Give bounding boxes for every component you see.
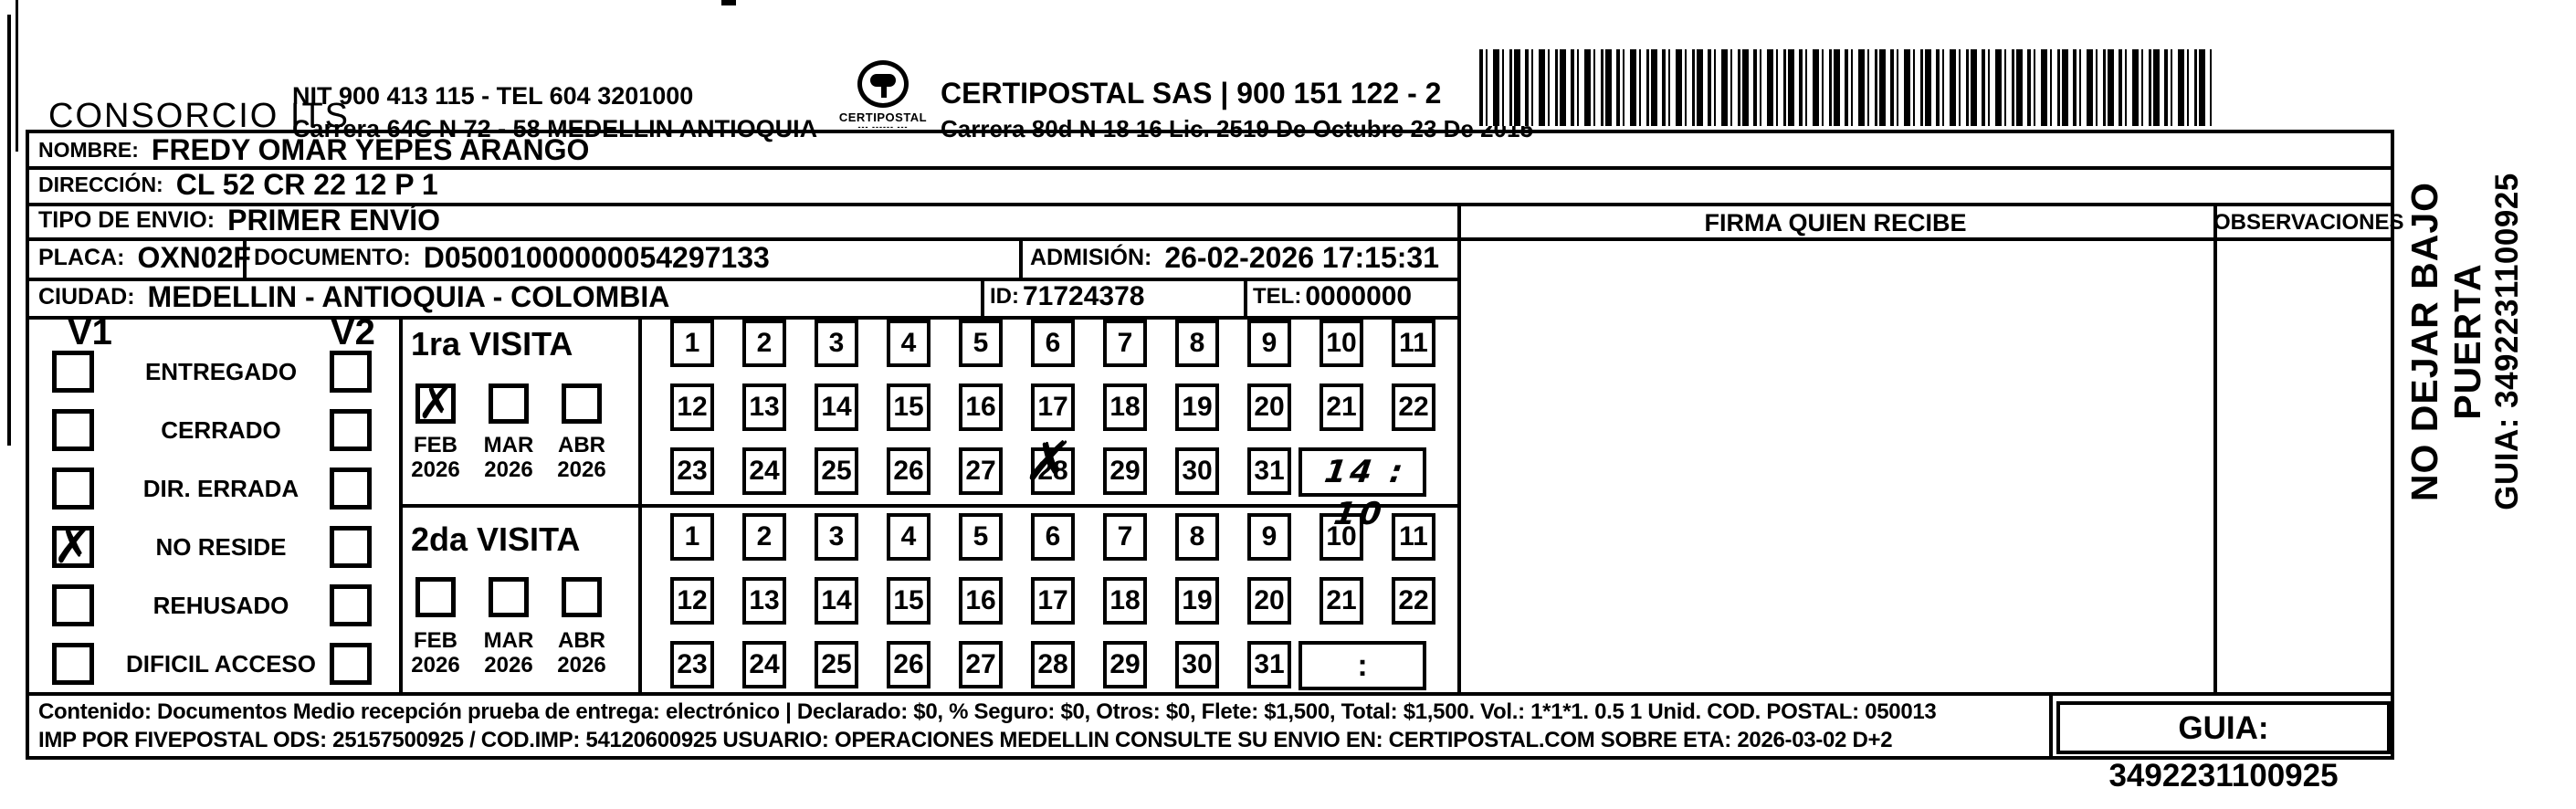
admision-value: 26-02-2026 17:15:31 <box>1164 241 1439 275</box>
v1-checkbox-no-reside: ✗ <box>52 526 94 568</box>
month-label-visit2-mar-2026: MAR2026 <box>468 628 550 678</box>
id-value: 71724378 <box>1023 281 1144 312</box>
tipo-envio-row: TIPO DE ENVIO: PRIMER ENVÍO <box>38 203 440 237</box>
day-box-visit2-27: 27 <box>959 641 1003 688</box>
observaciones-header: OBSERVACIONES <box>2213 205 2398 239</box>
scan-artifact-line <box>16 0 18 152</box>
admision-cell: ADMISIÓN: 26-02-2026 17:15:31 <box>1030 237 1439 278</box>
day-box-visit2-14: 14 <box>815 577 858 625</box>
placa-label: PLACA: <box>38 245 124 271</box>
day-box-visit1-24: 24 <box>742 447 786 495</box>
visit1-title: 1ra VISITA <box>411 325 573 363</box>
month-label-visit1-abr-2026: ABR2026 <box>541 433 623 482</box>
day-box-visit1-12: 12 <box>670 383 714 431</box>
day-box-visit1-7: 7 <box>1103 320 1147 367</box>
v1-checkbox-entregado <box>52 351 94 393</box>
time-value-visit2: : <box>1357 645 1367 687</box>
day-box-visit2-3: 3 <box>815 513 858 561</box>
tel-label: TEL: <box>1253 284 1301 310</box>
day-box-visit1-10: 10 <box>1320 320 1363 367</box>
tipo-envio-value: PRIMER ENVÍO <box>227 204 440 237</box>
day-box-visit2-16: 16 <box>959 577 1003 625</box>
nombre-value: FREDY OMAR YEPES ARANGO <box>152 133 589 167</box>
v2-checkbox-no-reside <box>330 526 372 568</box>
day-box-visit2-13: 13 <box>742 577 786 625</box>
status-option-label-rehusado: REHUSADO <box>116 592 326 620</box>
tel-value: 0000000 <box>1305 281 1412 312</box>
firma-signature-area <box>1457 237 2213 692</box>
side-guia-number: GUIA: 3492231100925 <box>2489 131 2526 552</box>
day-box-visit2-2: 2 <box>742 513 786 561</box>
time-box-visit2: : <box>1299 641 1426 690</box>
day-box-visit1-23: 23 <box>670 447 714 495</box>
month-label-visit2-feb-2026: FEB2026 <box>394 628 477 678</box>
day-box-visit1-27: 27 <box>959 447 1003 495</box>
day-box-visit1-3: 3 <box>815 320 858 367</box>
day-box-visit1-19: 19 <box>1175 383 1219 431</box>
day-box-visit1-28: 28✗ <box>1031 447 1075 495</box>
day-box-visit2-7: 7 <box>1103 513 1147 561</box>
side-rotated-text: NO DEJAR BAJO PUERTA GUIA: 3492231100925 <box>2403 131 2495 552</box>
day-box-visit2-9: 9 <box>1247 513 1291 561</box>
day-box-visit2-28: 28 <box>1031 641 1075 688</box>
handwritten-x-day-28: ✗ <box>1023 442 1078 482</box>
time-box-visit1: 14 : 10 <box>1299 447 1426 497</box>
v1-checkbox-dificil-acceso <box>52 643 94 685</box>
month-checkbox-visit1-mar-2026 <box>489 383 529 424</box>
tel-cell: TEL: 0000000 <box>1253 278 1412 316</box>
delivery-form-table: NOMBRE: FREDY OMAR YEPES ARANGO DIRECCIÓ… <box>26 130 2394 760</box>
day-box-visit1-20: 20 <box>1247 383 1291 431</box>
id-label: ID: <box>990 284 1019 310</box>
day-box-visit1-16: 16 <box>959 383 1003 431</box>
observaciones-area <box>2213 237 2398 692</box>
ciudad-label: CIUDAD: <box>38 284 135 310</box>
direccion-row: DIRECCIÓN: CL 52 CR 22 12 P 1 <box>38 166 438 203</box>
month-checkbox-visit1-abr-2026 <box>562 383 602 424</box>
day-box-visit1-14: 14 <box>815 383 858 431</box>
day-box-visit1-8: 8 <box>1175 320 1219 367</box>
status-option-label-entregado: ENTREGADO <box>116 358 326 386</box>
day-box-visit1-25: 25 <box>815 447 858 495</box>
month-label-visit2-abr-2026: ABR2026 <box>541 628 623 678</box>
day-box-visit1-2: 2 <box>742 320 786 367</box>
v1-checkbox-dir-errada <box>52 468 94 510</box>
direccion-label: DIRECCIÓN: <box>38 173 163 197</box>
month-label-visit1-feb-2026: FEB2026 <box>394 433 477 482</box>
day-box-visit2-23: 23 <box>670 641 714 688</box>
day-box-visit1-30: 30 <box>1175 447 1219 495</box>
day-box-visit2-6: 6 <box>1031 513 1075 561</box>
imp-line: IMP POR FIVEPOSTAL ODS: 25157500925 / CO… <box>38 728 1892 753</box>
day-box-visit2-5: 5 <box>959 513 1003 561</box>
day-box-visit2-22: 22 <box>1392 577 1435 625</box>
placa-value: OXN02F <box>137 241 250 275</box>
day-box-visit1-11: 11 <box>1392 320 1435 367</box>
v2-checkbox-dificil-acceso <box>330 643 372 685</box>
day-box-visit1-22: 22 <box>1392 383 1435 431</box>
id-cell: ID: 71724378 <box>990 278 1144 316</box>
admision-label: ADMISIÓN: <box>1030 245 1151 271</box>
v2-column-header: V2 <box>331 312 375 353</box>
day-box-visit2-18: 18 <box>1103 577 1147 625</box>
day-box-visit2-15: 15 <box>887 577 931 625</box>
status-option-label-dir-errada: DIR. ERRADA <box>116 475 326 503</box>
v1-checkmark-no-reside: ✗ <box>53 520 93 574</box>
day-box-visit1-15: 15 <box>887 383 931 431</box>
status-option-label-cerrado: CERRADO <box>116 416 326 445</box>
v1-checkbox-rehusado <box>52 584 94 626</box>
scan-artifact-line <box>7 15 11 446</box>
day-box-visit1-21: 21 <box>1320 383 1363 431</box>
no-dejar-bajo-puerta-text: NO DEJAR BAJO PUERTA <box>2403 131 2489 552</box>
certipostal-company-line: CERTIPOSTAL SAS | 900 151 122 - 2 <box>941 77 1441 110</box>
v1-column-header: V1 <box>68 312 112 353</box>
day-box-visit1-18: 18 <box>1103 383 1147 431</box>
month-checkbox-visit1-feb-2026: ✗ <box>415 383 456 424</box>
direccion-value: CL 52 CR 22 12 P 1 <box>176 168 438 202</box>
day-box-visit2-29: 29 <box>1103 641 1147 688</box>
month-checkbox-visit2-feb-2026 <box>415 577 456 617</box>
day-box-visit2-30: 30 <box>1175 641 1219 688</box>
v2-checkbox-rehusado <box>330 584 372 626</box>
day-box-visit2-19: 19 <box>1175 577 1219 625</box>
documento-value: D05001000000054297133 <box>424 241 770 275</box>
day-box-visit1-29: 29 <box>1103 447 1147 495</box>
day-box-visit2-10: 10 <box>1320 513 1363 561</box>
documento-label: DOCUMENTO: <box>254 245 411 271</box>
nombre-row: NOMBRE: FREDY OMAR YEPES ARANGO <box>38 133 589 166</box>
tipo-envio-label: TIPO DE ENVIO: <box>38 207 215 234</box>
month-checkbox-visit2-mar-2026 <box>489 577 529 617</box>
day-box-visit1-17: 17 <box>1031 383 1075 431</box>
contenido-line: Contenido: Documentos Medio recepción pr… <box>38 699 1936 725</box>
day-box-visit1-6: 6 <box>1031 320 1075 367</box>
ciudad-cell: CIUDAD: MEDELLIN - ANTIOQUIA - COLOMBIA <box>38 278 669 316</box>
day-box-visit2-24: 24 <box>742 641 786 688</box>
placa-cell: PLACA: OXN02F <box>38 237 251 278</box>
month-checkmark-visit1-feb-2026: ✗ <box>417 378 454 429</box>
day-box-visit1-26: 26 <box>887 447 931 495</box>
day-box-visit2-20: 20 <box>1247 577 1291 625</box>
day-box-visit2-1: 1 <box>670 513 714 561</box>
visit2-title: 2da VISITA <box>411 520 580 559</box>
day-box-visit2-8: 8 <box>1175 513 1219 561</box>
month-label-visit1-mar-2026: MAR2026 <box>468 433 550 482</box>
status-option-label-no-reside: NO RESIDE <box>116 533 326 562</box>
day-box-visit1-1: 1 <box>670 320 714 367</box>
v1-checkbox-cerrado <box>52 409 94 451</box>
v2-checkbox-entregado <box>330 351 372 393</box>
day-box-visit1-9: 9 <box>1247 320 1291 367</box>
day-box-visit1-4: 4 <box>887 320 931 367</box>
company-nit-line: NIT 900 413 115 - TEL 604 3201000 <box>292 82 693 110</box>
day-box-visit1-5: 5 <box>959 320 1003 367</box>
documento-cell: DOCUMENTO: D05001000000054297133 <box>254 237 770 278</box>
day-box-visit2-25: 25 <box>815 641 858 688</box>
scan-artifact-tick <box>721 0 736 5</box>
firma-quien-recibe-header: FIRMA QUIEN RECIBE <box>1457 205 2213 239</box>
day-box-visit2-17: 17 <box>1031 577 1075 625</box>
day-box-visit2-11: 11 <box>1392 513 1435 561</box>
certipostal-logo-icon <box>857 60 909 108</box>
day-box-visit2-31: 31 <box>1247 641 1291 688</box>
month-checkbox-visit2-abr-2026 <box>562 577 602 617</box>
tracking-barcode <box>1479 49 2212 126</box>
v2-checkbox-dir-errada <box>330 468 372 510</box>
day-box-visit2-12: 12 <box>670 577 714 625</box>
v2-checkbox-cerrado <box>330 409 372 451</box>
certipostal-logo: CERTIPOSTAL --- ------ --- <box>833 60 933 131</box>
day-box-visit2-21: 21 <box>1320 577 1363 625</box>
day-box-visit1-13: 13 <box>742 383 786 431</box>
status-option-label-dificil-acceso: DIFICIL ACCESO <box>116 650 326 678</box>
day-box-visit1-31: 31 <box>1247 447 1291 495</box>
day-box-visit2-4: 4 <box>887 513 931 561</box>
day-box-visit2-26: 26 <box>887 641 931 688</box>
nombre-label: NOMBRE: <box>38 138 139 163</box>
guia-number-box: GUIA: 3492231100925 <box>2056 701 2391 754</box>
ciudad-value: MEDELLIN - ANTIOQUIA - COLOMBIA <box>148 280 670 314</box>
